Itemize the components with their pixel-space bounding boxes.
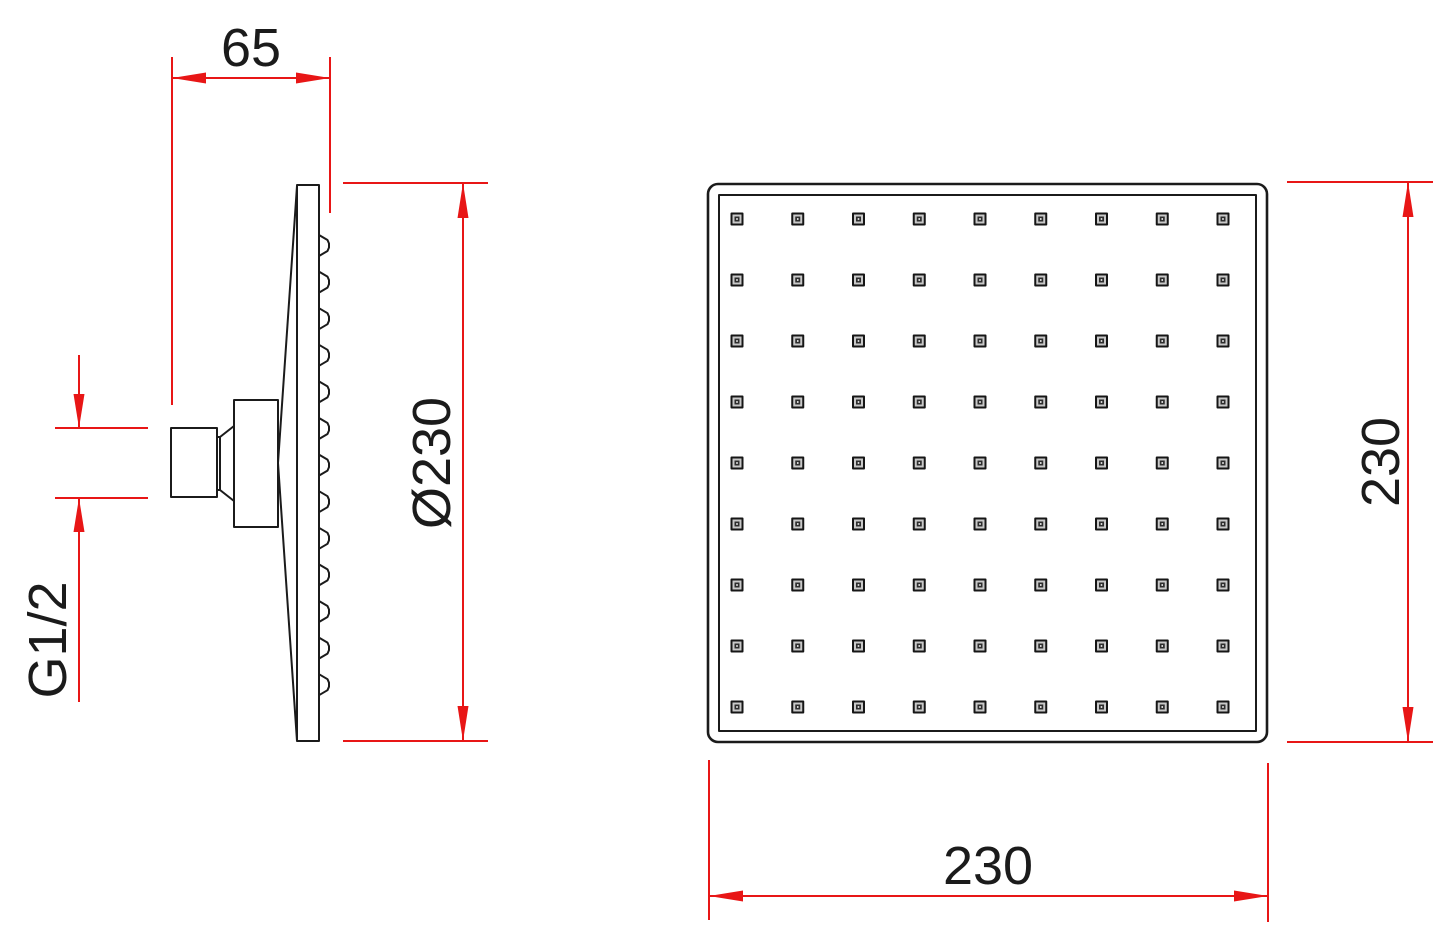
nozzle	[732, 397, 743, 408]
arrowhead-left	[172, 73, 206, 84]
nozzle-dot	[1161, 401, 1163, 403]
nozzle-dot	[736, 706, 738, 708]
nozzle	[1096, 519, 1107, 530]
technical-drawing: 65 G1/2 Ø230 230 230	[0, 0, 1446, 945]
nozzle-dot	[1161, 218, 1163, 220]
nozzle-dot	[1222, 401, 1224, 403]
nozzle	[1035, 336, 1046, 347]
nozzle	[914, 336, 925, 347]
side-nozzle-teeth	[319, 235, 329, 695]
nozzle	[792, 397, 803, 408]
nozzle	[1096, 702, 1107, 713]
nozzle-dot	[1161, 462, 1163, 464]
face-plate	[297, 185, 319, 741]
arrowhead-down	[458, 706, 469, 741]
nozzle	[1157, 580, 1168, 591]
nozzle-dot	[979, 218, 981, 220]
nozzle	[853, 275, 864, 286]
nozzle-dot	[797, 645, 799, 647]
nozzle-dot	[736, 462, 738, 464]
nozzle-tooth	[319, 601, 329, 622]
nozzle-dot	[1040, 462, 1042, 464]
nozzle	[975, 336, 986, 347]
nozzle	[853, 214, 864, 225]
nozzle-dot	[1101, 218, 1103, 220]
nozzle-dot	[1101, 706, 1103, 708]
nozzle-dot	[1222, 462, 1224, 464]
nozzle	[975, 641, 986, 652]
nozzle	[1096, 336, 1107, 347]
nozzle-dot	[736, 218, 738, 220]
inlet-pipe	[171, 428, 217, 497]
nozzle-dot	[1161, 523, 1163, 525]
nozzle	[792, 275, 803, 286]
nozzle	[1157, 275, 1168, 286]
nozzle-dot	[797, 523, 799, 525]
nozzle-dot	[736, 645, 738, 647]
nozzle-dot	[736, 584, 738, 586]
nozzle	[914, 702, 925, 713]
front-nozzle-grid	[732, 214, 1229, 713]
nozzle	[914, 214, 925, 225]
nozzle	[853, 458, 864, 469]
nozzle	[732, 580, 743, 591]
nozzle	[1035, 641, 1046, 652]
nozzle	[853, 336, 864, 347]
nozzle	[1157, 336, 1168, 347]
nozzle	[975, 275, 986, 286]
nozzle-dot	[797, 340, 799, 342]
arrowhead-right	[1234, 891, 1268, 902]
nozzle	[1035, 702, 1046, 713]
nozzle-dot	[918, 706, 920, 708]
nozzle-dot	[918, 523, 920, 525]
nozzle	[1035, 214, 1046, 225]
nozzle-dot	[858, 645, 860, 647]
nozzle-dot	[858, 706, 860, 708]
nozzle-dot	[918, 462, 920, 464]
nozzle-dot	[979, 462, 981, 464]
nozzle-tooth	[319, 308, 329, 329]
nozzle-dot	[858, 584, 860, 586]
mounting-block	[234, 400, 278, 527]
nozzle-dot	[797, 218, 799, 220]
nozzle-tooth	[319, 674, 329, 695]
nozzle	[1035, 275, 1046, 286]
nozzle-dot	[979, 584, 981, 586]
nozzle-dot	[1161, 706, 1163, 708]
nozzle	[1157, 397, 1168, 408]
nozzle	[914, 580, 925, 591]
nozzle-dot	[1040, 401, 1042, 403]
nozzle	[792, 458, 803, 469]
nozzle	[1218, 702, 1229, 713]
nozzle-dot	[979, 279, 981, 281]
nozzle	[792, 336, 803, 347]
nozzle	[792, 641, 803, 652]
nozzle-dot	[736, 401, 738, 403]
nozzle	[975, 458, 986, 469]
nozzle-dot	[736, 279, 738, 281]
nozzle	[853, 580, 864, 591]
nozzle-dot	[1222, 645, 1224, 647]
nozzle	[853, 641, 864, 652]
nozzle-dot	[1101, 340, 1103, 342]
nozzle	[1035, 580, 1046, 591]
nozzle	[853, 397, 864, 408]
nozzle-dot	[1040, 706, 1042, 708]
nozzle	[1218, 214, 1229, 225]
nozzle-dot	[858, 279, 860, 281]
nozzle	[732, 275, 743, 286]
arrowhead-up	[458, 183, 469, 218]
nozzle	[1157, 702, 1168, 713]
nozzle-dot	[1101, 584, 1103, 586]
nozzle-dot	[797, 706, 799, 708]
nozzle	[914, 458, 925, 469]
arrowhead-down	[74, 394, 85, 428]
nozzle-dot	[1040, 340, 1042, 342]
dimension-diameter-230: Ø230	[343, 183, 488, 741]
nozzle-dot	[1101, 401, 1103, 403]
nozzle-dot	[1040, 523, 1042, 525]
nozzle	[1096, 580, 1107, 591]
nozzle	[1035, 458, 1046, 469]
front-view	[708, 184, 1267, 742]
nozzle	[853, 702, 864, 713]
nozzle-tooth	[319, 418, 329, 439]
nozzle-dot	[1161, 584, 1163, 586]
nozzle-dot	[797, 401, 799, 403]
nozzle-dot	[858, 462, 860, 464]
nozzle	[732, 702, 743, 713]
nozzle-dot	[918, 218, 920, 220]
nozzle-dot	[1161, 340, 1163, 342]
nozzle	[732, 519, 743, 530]
nozzle	[1035, 519, 1046, 530]
nozzle	[975, 214, 986, 225]
drawing-canvas: 65 G1/2 Ø230 230 230	[0, 0, 1446, 945]
nozzle-dot	[1101, 645, 1103, 647]
nozzle	[792, 580, 803, 591]
nozzle-dot	[736, 523, 738, 525]
nozzle-dot	[979, 523, 981, 525]
nozzle-tooth	[319, 528, 329, 549]
nozzle	[1096, 397, 1107, 408]
nozzle	[1218, 275, 1229, 286]
nozzle	[792, 214, 803, 225]
nozzle	[914, 275, 925, 286]
nozzle	[853, 519, 864, 530]
nozzle	[1157, 641, 1168, 652]
nozzle	[792, 702, 803, 713]
back-cover-slope	[278, 186, 297, 741]
nozzle	[1096, 275, 1107, 286]
nozzle	[975, 397, 986, 408]
nozzle-dot	[918, 645, 920, 647]
nozzle	[1157, 458, 1168, 469]
nozzle-dot	[1040, 218, 1042, 220]
nozzle-dot	[918, 401, 920, 403]
front-width-dim-label: 230	[943, 836, 1033, 896]
nozzle-dot	[1222, 706, 1224, 708]
nozzle	[975, 702, 986, 713]
arrowhead-down	[1403, 707, 1414, 742]
nozzle-dot	[918, 340, 920, 342]
nozzle-dot	[979, 401, 981, 403]
nozzle	[732, 458, 743, 469]
nozzle-dot	[1222, 279, 1224, 281]
nozzle-tooth	[319, 638, 329, 659]
nozzle	[1218, 580, 1229, 591]
nozzle-tooth	[319, 381, 329, 402]
nozzle-dot	[1161, 279, 1163, 281]
nozzle-dot	[797, 584, 799, 586]
nozzle-dot	[1040, 584, 1042, 586]
nozzle	[1157, 214, 1168, 225]
nozzle-dot	[858, 218, 860, 220]
nozzle	[1218, 336, 1229, 347]
nozzle-dot	[797, 279, 799, 281]
nozzle-tooth	[319, 564, 329, 585]
nozzle	[1218, 519, 1229, 530]
nozzle-dot	[858, 401, 860, 403]
nozzle-tooth	[319, 491, 329, 512]
nozzle	[1096, 214, 1107, 225]
nozzle-dot	[1040, 645, 1042, 647]
nozzle-dot	[1040, 279, 1042, 281]
nozzle	[1096, 641, 1107, 652]
nozzle	[732, 214, 743, 225]
nozzle-tooth	[319, 235, 329, 256]
nozzle	[914, 519, 925, 530]
nozzle-dot	[1222, 340, 1224, 342]
nozzle	[975, 519, 986, 530]
depth-dim-label: 65	[221, 18, 281, 78]
nozzle-dot	[797, 462, 799, 464]
nozzle	[1035, 397, 1046, 408]
nozzle	[1096, 458, 1107, 469]
arrowhead-up	[74, 498, 85, 532]
nozzle	[914, 397, 925, 408]
nozzle	[1157, 519, 1168, 530]
dimension-front-height-230: 230	[1287, 182, 1433, 742]
nozzle-tooth	[319, 272, 329, 293]
nozzle-tooth	[319, 455, 329, 476]
nozzle-dot	[918, 279, 920, 281]
nozzle-dot	[1222, 218, 1224, 220]
arrowhead-left	[709, 891, 743, 902]
nozzle	[1218, 458, 1229, 469]
pipe-neck	[217, 426, 234, 501]
nozzle-dot	[1161, 645, 1163, 647]
nozzle-dot	[1101, 523, 1103, 525]
nozzle-dot	[1222, 584, 1224, 586]
diameter-dim-label: Ø230	[402, 397, 462, 529]
dimension-front-width-230: 230	[709, 760, 1268, 922]
nozzle-dot	[1222, 523, 1224, 525]
nozzle-dot	[1101, 279, 1103, 281]
nozzle	[1218, 397, 1229, 408]
nozzle-dot	[858, 523, 860, 525]
arrowhead-right	[296, 73, 330, 84]
nozzle-dot	[979, 645, 981, 647]
nozzle-dot	[918, 584, 920, 586]
nozzle	[732, 641, 743, 652]
nozzle-dot	[858, 340, 860, 342]
front-height-dim-label: 230	[1351, 417, 1411, 507]
nozzle-dot	[1101, 462, 1103, 464]
nozzle	[914, 641, 925, 652]
side-view	[171, 185, 329, 741]
thread-dim-label: G1/2	[18, 581, 78, 698]
nozzle	[1218, 641, 1229, 652]
nozzle-tooth	[319, 345, 329, 366]
arrowhead-up	[1403, 182, 1414, 217]
nozzle-dot	[736, 340, 738, 342]
nozzle	[975, 580, 986, 591]
nozzle	[792, 519, 803, 530]
nozzle-dot	[979, 706, 981, 708]
dimension-thread-g12: G1/2	[18, 355, 148, 702]
nozzle	[732, 336, 743, 347]
nozzle-dot	[979, 340, 981, 342]
